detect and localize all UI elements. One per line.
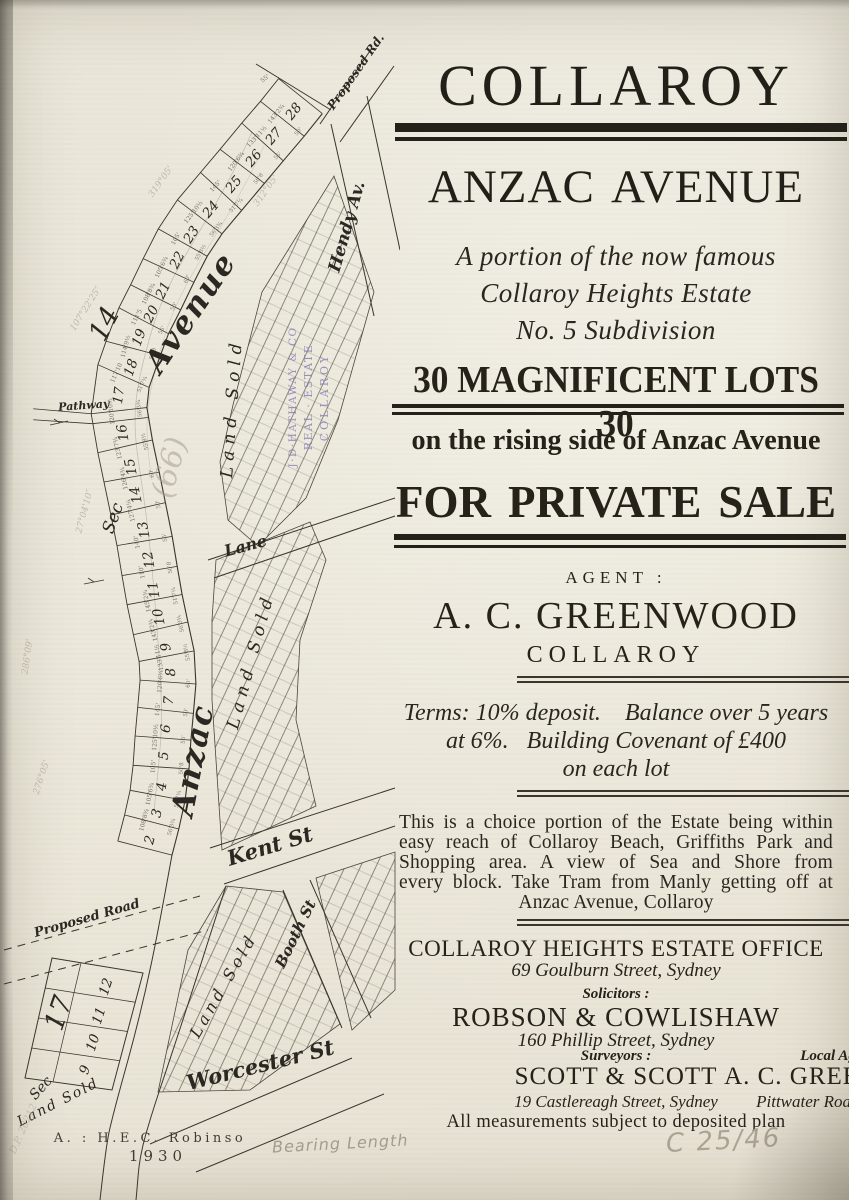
street-label: Sec: [99, 500, 129, 537]
bearing-note: 319°05': [147, 164, 176, 199]
bearing-note: 286°09': [20, 638, 35, 676]
agent-label: AGENT :: [390, 568, 842, 588]
dimension-label: 56'3¾: [166, 817, 177, 836]
divider-rule: [395, 123, 847, 141]
agent-location: COLLAROY: [390, 642, 842, 669]
description-line: Anzac Avenue, Collaroy: [390, 893, 842, 913]
lot-number: 6: [158, 723, 175, 733]
rising-side-line: on the rising side of Anzac Avenue: [397, 424, 835, 457]
survey-mark: [50, 419, 68, 425]
dimension-label: 120'6¾: [156, 670, 165, 693]
lot-number: 20: [140, 303, 163, 327]
dimension-label: 50': [294, 127, 304, 137]
lot-number: 3: [148, 807, 165, 819]
lot-number: 23: [180, 223, 203, 247]
lot-number: 11: [89, 1005, 110, 1026]
printer-year: 1930: [129, 1147, 187, 1165]
dimension-label: 114'9½: [120, 334, 133, 358]
agent-name: A. C. GREENWOOD: [390, 594, 842, 638]
survey-mark: [84, 578, 104, 584]
proposed-road-line: [4, 930, 208, 984]
lot-number: 12: [96, 976, 117, 997]
poster: 2827262524232221201918171615141312111098…: [0, 0, 849, 1200]
ad-panel: COLLAROY ANZAC AVENUE A portion of the n…: [390, 0, 842, 1200]
pencil-note: (66): [145, 433, 195, 502]
subtitle: ANZAC AVENUE: [390, 160, 842, 214]
lot-number: 7: [161, 695, 178, 705]
lot-number: 2: [141, 834, 159, 847]
pathway-line: [33, 420, 92, 424]
lot-number: 8: [163, 667, 179, 677]
dimension-label: 56'3¾: [135, 399, 144, 418]
dimension-label: 55': [162, 533, 169, 542]
dimension-label: 125'10½: [151, 724, 160, 751]
street-label: Proposed Rd.: [324, 31, 387, 113]
lot-number: 28: [282, 99, 306, 124]
agency-stamp-line: REAL · ESTATE: [302, 344, 315, 451]
street-label: Pathway: [57, 397, 112, 414]
office-address: 69 Goulburn Street, Sydney: [390, 960, 842, 982]
dimension-label: 56'3¾: [208, 220, 224, 239]
solicitors-name: ROBSON & COWLISHAW: [390, 1002, 842, 1033]
dimension-label: 51'7¼: [170, 586, 180, 605]
local-agent-block: Local Agent : A. C. GREENWOOD Pittwater …: [616, 1048, 849, 1118]
terms-line: at 6%. Building Covenant of £400: [390, 728, 842, 755]
description-line: easy reach of Collaroy Beach, Griffiths …: [390, 833, 842, 853]
lot-division: [32, 1048, 120, 1061]
divider-rule: [392, 404, 844, 415]
local-agent-address: Pittwater Road, Collaroy: [616, 1092, 849, 1112]
tagline-line: A portion of the now famous: [390, 238, 842, 275]
street-label: Anzac: [164, 701, 222, 822]
divider-rule: [394, 534, 846, 548]
dimension-label: 51'7¼: [136, 374, 150, 393]
divider-rule: [517, 790, 849, 797]
bearing-note: 276°05': [32, 759, 53, 797]
dimension-label: 60': [186, 679, 193, 688]
description-line: Shopping area. A view of Sea and Shore f…: [390, 853, 842, 873]
dimension-label: 105'6¾: [154, 255, 170, 279]
lot-number: 9: [76, 1063, 94, 1077]
dimension-label: 105'6¾: [145, 782, 156, 806]
agency-stamp-line: J·D·HATHAWAY & CO: [287, 326, 299, 468]
dimension-label: 56'3¾: [175, 614, 186, 633]
agency-stamp-line: COLLAROY: [318, 353, 331, 442]
dimension-label: 50'8: [253, 172, 265, 186]
printer-credit: A. : H.E.C. Robinso: [53, 1131, 246, 1146]
lot-number: 22: [166, 249, 189, 272]
street-label: 17: [39, 991, 80, 1034]
divider-rule: [517, 919, 849, 926]
local-agent-name: A. C. GREENWOOD: [616, 1063, 849, 1091]
description-line: every block. Take Tram from Manly gettin…: [390, 873, 842, 893]
dimension-label: 55'8½: [140, 432, 151, 450]
tagline-line: Collaroy Heights Estate: [390, 275, 842, 312]
dimension-label: 55'8½: [182, 643, 192, 661]
bearing-note: 27°04'10″: [74, 488, 96, 535]
dimension-label: 145': [154, 702, 162, 716]
dimension-label: 50'8: [166, 561, 174, 574]
dimension-label: 55': [259, 73, 271, 84]
street-label: Proposed Road: [31, 896, 141, 941]
dimension-label: 50': [155, 499, 163, 509]
terms-line: Terms: 10% deposit. Balance over 5 years: [390, 700, 842, 727]
proposed-road-line: [4, 896, 200, 950]
terms-line: on each lot: [390, 756, 842, 783]
dimension-label: 105': [150, 760, 158, 774]
footnote: All measurements subject to deposited pl…: [390, 1112, 842, 1133]
dimension-label: 51'7¼: [228, 196, 245, 214]
page-title: COLLAROY: [390, 52, 842, 119]
solicitors-label: Solicitors :: [390, 986, 842, 1003]
divider-rule: [517, 676, 849, 683]
description-line: This is a choice portion of the Estate b…: [390, 813, 842, 833]
land-sold-hatch: [212, 522, 326, 850]
office-name: COLLAROY HEIGHTS ESTATE OFFICE: [390, 936, 842, 962]
dimension-label: 108'8¾: [138, 808, 151, 832]
lot-number: 5: [156, 751, 173, 761]
tagline-line: No. 5 Subdivision: [390, 312, 842, 349]
subdivision-map: 2827262524232221201918171615141312111098…: [0, 0, 400, 1200]
sale-banner: FOR PRIVATE SALE: [390, 476, 842, 528]
tagline: A portion of the now famous Collaroy Hei…: [390, 238, 842, 349]
lot-number: 10: [83, 1032, 104, 1054]
lot-number: 25: [222, 173, 246, 197]
pathway-line: [92, 418, 148, 424]
